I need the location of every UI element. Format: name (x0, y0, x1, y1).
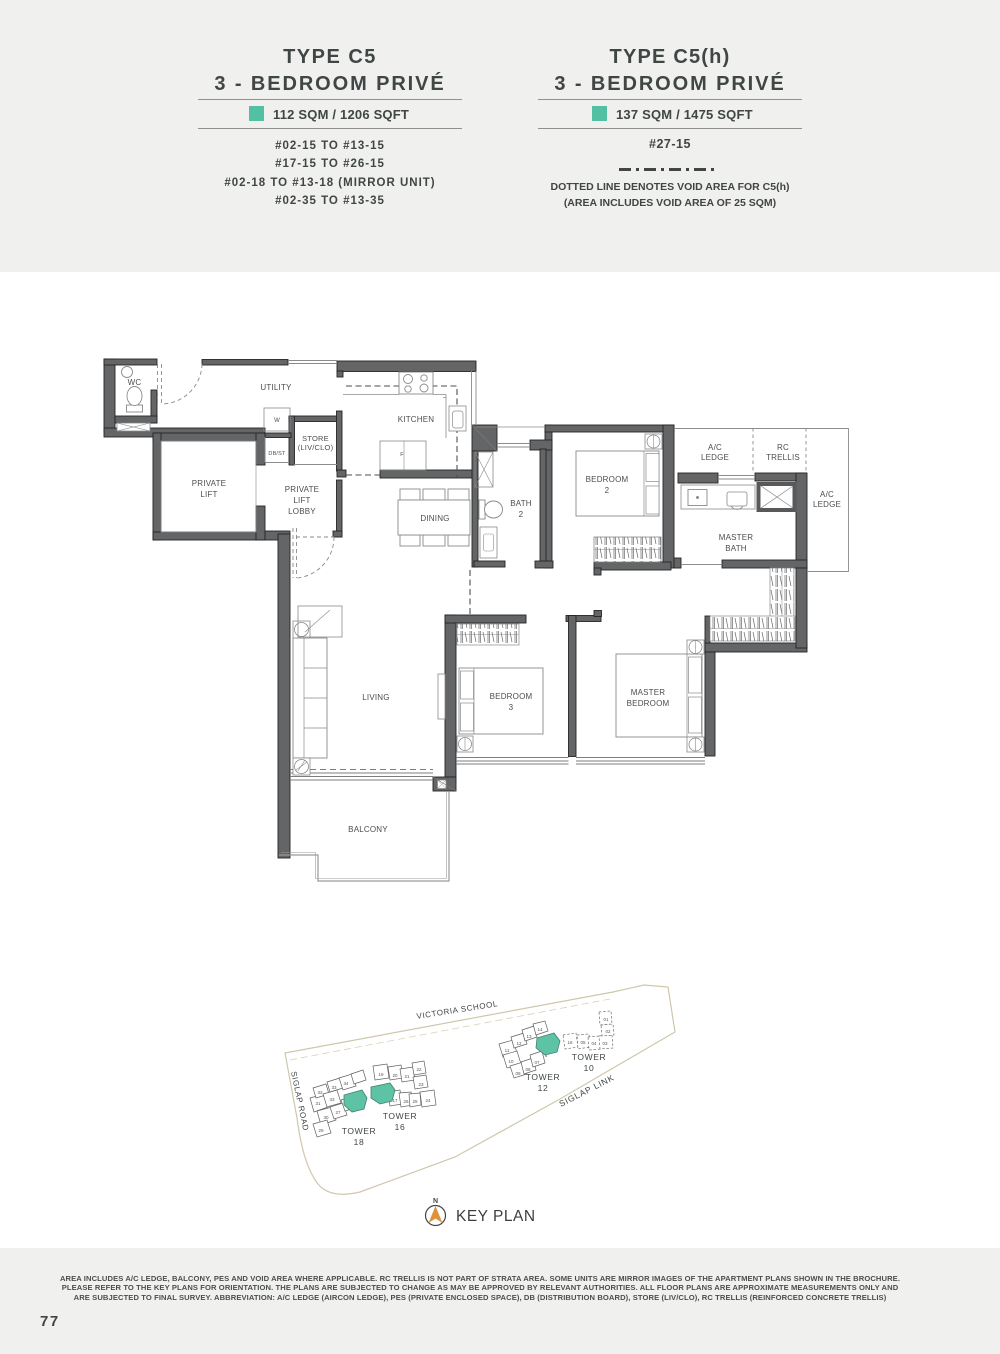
svg-text:2: 2 (519, 510, 524, 519)
svg-text:23: 23 (418, 1082, 424, 1087)
svg-text:10: 10 (584, 1063, 595, 1073)
svg-text:PRIVATE: PRIVATE (192, 479, 226, 488)
svg-text:22: 22 (416, 1067, 422, 1072)
svg-text:24: 24 (425, 1098, 431, 1103)
svg-text:WC: WC (128, 378, 142, 387)
svg-text:02: 02 (605, 1029, 611, 1034)
svg-text:32: 32 (317, 1090, 323, 1095)
svg-text:30: 30 (323, 1115, 329, 1120)
svg-text:25: 25 (412, 1099, 418, 1104)
svg-text:BEDROOM: BEDROOM (627, 699, 670, 708)
svg-text:TOWER: TOWER (383, 1111, 417, 1121)
svg-text:21: 21 (404, 1074, 410, 1079)
svg-text:18: 18 (354, 1137, 365, 1147)
svg-text:04: 04 (591, 1041, 597, 1046)
svg-text:33: 33 (331, 1085, 337, 1090)
svg-text:10: 10 (508, 1059, 514, 1064)
svg-text:14: 14 (537, 1027, 543, 1032)
svg-text:BEDROOM: BEDROOM (490, 692, 533, 701)
svg-text:LEDGE: LEDGE (701, 453, 729, 462)
svg-text:12: 12 (516, 1041, 522, 1046)
svg-text:19: 19 (378, 1072, 384, 1077)
svg-text:26: 26 (403, 1099, 409, 1104)
svg-text:LEDGE: LEDGE (813, 500, 841, 509)
svg-text:01: 01 (603, 1017, 609, 1022)
svg-text:A/C: A/C (820, 490, 834, 499)
svg-text:05: 05 (580, 1040, 586, 1045)
svg-text:TRELLIS: TRELLIS (766, 453, 800, 462)
svg-text:(LIV/CLO): (LIV/CLO) (298, 443, 334, 452)
svg-text:07: 07 (534, 1060, 540, 1065)
svg-text:SIGLAP LINK: SIGLAP LINK (557, 1072, 616, 1108)
svg-text:16: 16 (567, 1040, 573, 1045)
svg-text:31: 31 (315, 1101, 321, 1106)
svg-text:BALCONY: BALCONY (348, 825, 388, 834)
svg-text:SIGLAP ROAD: SIGLAP ROAD (289, 1071, 310, 1132)
svg-text:03: 03 (602, 1041, 608, 1046)
svg-text:3: 3 (509, 703, 514, 712)
svg-text:BEDROOM: BEDROOM (586, 475, 629, 484)
svg-text:17: 17 (392, 1098, 398, 1103)
svg-text:VICTORIA SCHOOL: VICTORIA SCHOOL (416, 999, 499, 1021)
svg-text:MASTER: MASTER (631, 688, 666, 697)
svg-text:A/C: A/C (708, 443, 722, 452)
svg-text:STORE: STORE (302, 434, 329, 443)
svg-text:LIVING: LIVING (362, 693, 389, 702)
svg-text:BATH: BATH (510, 499, 532, 508)
svg-text:PRIVATE: PRIVATE (285, 485, 319, 494)
svg-text:16: 16 (395, 1122, 406, 1132)
svg-text:12: 12 (538, 1083, 549, 1093)
svg-text:TOWER: TOWER (526, 1072, 560, 1082)
svg-text:LIFT: LIFT (200, 490, 217, 499)
svg-text:TOWER: TOWER (572, 1052, 606, 1062)
svg-text:N: N (433, 1198, 438, 1205)
svg-text:11: 11 (505, 1048, 510, 1053)
svg-text:09: 09 (515, 1071, 521, 1076)
svg-text:2: 2 (605, 486, 610, 495)
svg-text:F: F (400, 452, 404, 458)
svg-text:W: W (274, 418, 280, 424)
svg-text:BATH: BATH (725, 544, 747, 553)
svg-text:34: 34 (343, 1081, 349, 1086)
svg-text:LIFT: LIFT (293, 496, 310, 505)
svg-text:MASTER: MASTER (719, 533, 754, 542)
svg-text:LOBBY: LOBBY (288, 507, 316, 516)
svg-text:DB/ST: DB/ST (268, 451, 286, 457)
svg-text:29: 29 (318, 1128, 324, 1133)
svg-text:13: 13 (526, 1034, 532, 1039)
svg-text:KITCHEN: KITCHEN (398, 415, 435, 424)
svg-text:RC: RC (777, 443, 789, 452)
svg-text:KEY PLAN: KEY PLAN (456, 1208, 536, 1225)
svg-text:DINING: DINING (420, 514, 449, 523)
svg-text:TOWER: TOWER (342, 1126, 376, 1136)
svg-text:UTILITY: UTILITY (260, 383, 292, 392)
svg-text:33: 33 (329, 1097, 335, 1102)
svg-text:27: 27 (335, 1110, 341, 1115)
svg-text:20: 20 (392, 1073, 398, 1078)
